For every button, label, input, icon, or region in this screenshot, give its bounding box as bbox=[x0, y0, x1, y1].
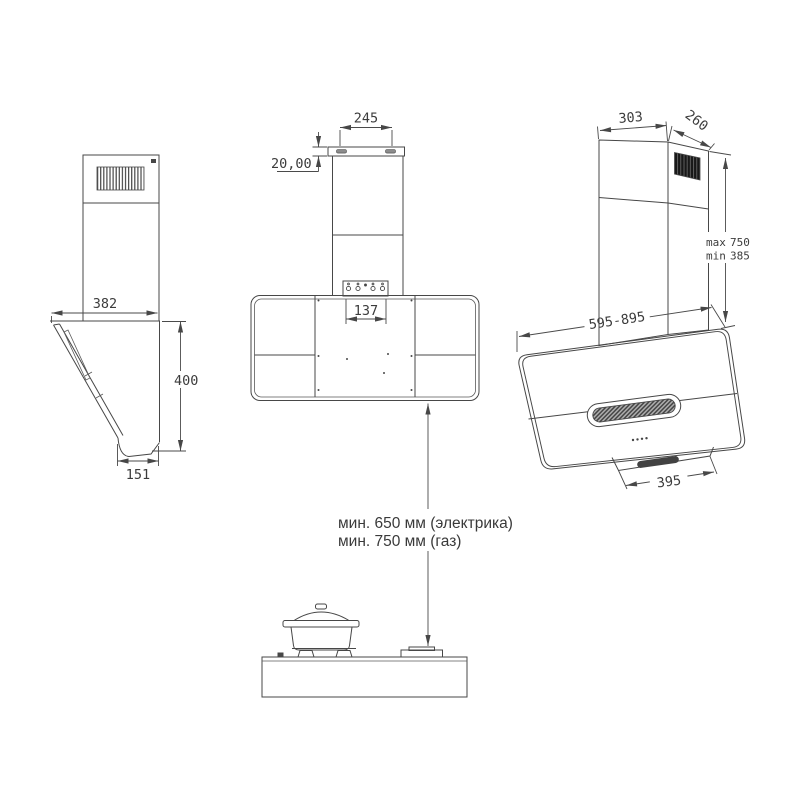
side-foot-outline bbox=[118, 438, 160, 457]
panel-dot bbox=[318, 355, 320, 357]
iso-intake-slot bbox=[586, 393, 682, 428]
front-chimney-body bbox=[333, 156, 404, 296]
panel-dot bbox=[411, 300, 413, 302]
panel-dot bbox=[318, 300, 320, 302]
plate-hole bbox=[356, 286, 360, 290]
dim-595-label-group: 595-895 bbox=[583, 306, 651, 334]
dim-min-label: min bbox=[706, 250, 726, 263]
front-duct-plate-holes bbox=[346, 283, 384, 291]
dim-395-label-group: 395 bbox=[649, 470, 689, 492]
dim-595-895: 595-895 bbox=[517, 305, 725, 353]
dim-max-min-height: max 750 min 385 bbox=[703, 152, 753, 329]
pot-lid-knob bbox=[316, 604, 327, 609]
pot bbox=[283, 604, 359, 650]
technical-drawing-page: 382 400 151 245 20,00 bbox=[0, 0, 800, 800]
panel-dot bbox=[411, 355, 413, 357]
front-duct-plate bbox=[343, 281, 388, 296]
front-view: 245 20,00 137 bbox=[251, 111, 479, 401]
pot-lid bbox=[294, 612, 349, 621]
control-dot bbox=[645, 437, 647, 439]
side-glass-panel bbox=[54, 324, 124, 438]
panel-dot bbox=[346, 358, 348, 360]
iso-chimney-joint-line bbox=[599, 198, 709, 210]
dim-137-label: 137 bbox=[354, 303, 378, 319]
counter-knob bbox=[278, 653, 284, 658]
dim-151: 151 bbox=[118, 444, 159, 483]
countertop bbox=[262, 657, 467, 697]
dim-245-ext bbox=[340, 130, 392, 146]
dim-max-label: max bbox=[706, 236, 726, 249]
plate-hole-small bbox=[382, 283, 384, 285]
side-corner-mark bbox=[151, 159, 156, 163]
dim-395-label: 395 bbox=[656, 473, 682, 492]
panel-dot bbox=[383, 372, 385, 374]
dim-382-label: 382 bbox=[93, 296, 117, 312]
plate-hole bbox=[371, 286, 375, 290]
plate-hole bbox=[380, 286, 384, 290]
dim-303: 303 bbox=[598, 109, 668, 141]
panel-dot bbox=[387, 353, 389, 355]
dim-2000-ext bbox=[313, 147, 328, 156]
front-bracket-slot-right bbox=[386, 150, 396, 154]
panel-dot bbox=[318, 389, 320, 391]
plate-hole-small bbox=[357, 283, 359, 285]
dim-max-value: 750 bbox=[730, 236, 750, 249]
dim-137: 137 bbox=[346, 299, 386, 324]
control-dot bbox=[632, 439, 634, 441]
plate-center-dot bbox=[365, 284, 367, 286]
dim-151-label: 151 bbox=[126, 467, 150, 483]
plate-hole bbox=[346, 286, 350, 290]
dim-595-label: 595-895 bbox=[588, 309, 647, 333]
installation-view: мин. 650 мм (электрика) мин. 750 мм (газ… bbox=[262, 404, 513, 698]
dim-303-label: 303 bbox=[618, 109, 644, 127]
dim-245-label: 245 bbox=[354, 111, 378, 127]
control-dot bbox=[641, 438, 643, 440]
control-dot bbox=[636, 438, 638, 440]
pot-rim-handles bbox=[283, 621, 359, 628]
dim-303-line bbox=[600, 126, 667, 131]
clearance-electric-label: мин. 650 мм (электрика) bbox=[338, 515, 513, 532]
clearance-gas-label: мин. 750 мм (газ) bbox=[338, 533, 461, 550]
dim-400-label: 400 bbox=[174, 373, 198, 389]
iso-control-dots bbox=[632, 437, 648, 441]
dim-245: 245 bbox=[340, 111, 392, 147]
iso-vent-grille bbox=[675, 153, 701, 181]
dim-260-label: 260 bbox=[682, 107, 711, 134]
pot-body bbox=[291, 627, 352, 650]
front-bracket-slot-left bbox=[337, 150, 347, 154]
dim-382: 382 bbox=[52, 296, 158, 323]
dim-2000-label: 20,00 bbox=[271, 156, 312, 172]
burner-grate-feet bbox=[298, 651, 352, 658]
panel-dot bbox=[411, 389, 413, 391]
iso-view: 595-895 303 260 max 750 min 385 bbox=[517, 107, 753, 492]
side-view: 382 400 151 bbox=[50, 155, 200, 483]
range-hood-installation-drawing: 382 400 151 245 20,00 bbox=[0, 0, 800, 800]
dim-min-value: 385 bbox=[730, 250, 750, 263]
right-burner bbox=[401, 647, 443, 657]
dim-20-00: 20,00 bbox=[271, 132, 327, 172]
plate-hole-small bbox=[372, 283, 374, 285]
right-burner-base bbox=[401, 650, 443, 657]
side-vent-grille bbox=[97, 167, 144, 190]
plate-hole-small bbox=[348, 283, 350, 285]
